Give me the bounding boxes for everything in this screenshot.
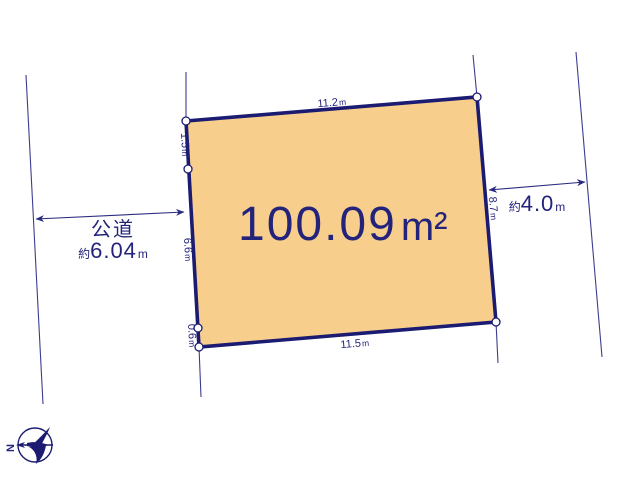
right-road-approx: 約 bbox=[509, 199, 521, 214]
boundary-marker-top-right bbox=[473, 93, 481, 101]
left-road-width-arrow bbox=[36, 212, 184, 219]
boundary-extension-bottom-right bbox=[496, 322, 498, 363]
boundary-marker-bottom-left bbox=[195, 343, 203, 351]
right-road-width-label: 約4.0m bbox=[509, 191, 566, 216]
right-road-far-boundary-line bbox=[576, 52, 602, 357]
land-plot-diagram: 100.09m² 公道 約6.04m 約4.0m 11.2m 11.5m 8.7… bbox=[0, 0, 640, 480]
area-unit: m² bbox=[401, 205, 448, 249]
boundary-extension-top-right bbox=[473, 55, 477, 97]
compass-north-label: N bbox=[5, 444, 17, 452]
left-road-far-boundary-line bbox=[26, 75, 43, 404]
boundary-marker-left-upper bbox=[184, 165, 192, 173]
diagram-canvas: 100.09m² 公道 約6.04m 約4.0m 11.2m 11.5m 8.7… bbox=[0, 0, 640, 480]
boundary-marker-top-left bbox=[182, 117, 190, 125]
compass: N bbox=[5, 427, 53, 464]
left-road-approx: 約 bbox=[78, 246, 90, 261]
boundary-marker-bottom-right bbox=[492, 318, 500, 326]
right-road-width-value: 4.0 bbox=[521, 191, 555, 216]
right-road-width-arrow bbox=[489, 182, 585, 190]
dim-left-middle-label: 6.6m bbox=[181, 238, 194, 262]
left-road-width-value: 6.04 bbox=[90, 238, 137, 263]
left-road-width-unit: m bbox=[138, 247, 148, 261]
dim-left-top-label: 1.5m bbox=[178, 133, 191, 157]
boundary-extension-bottom-left bbox=[199, 347, 201, 397]
area-label: 100.09m² bbox=[238, 198, 447, 251]
dim-bottom-label: 11.5m bbox=[340, 337, 370, 351]
right-road-width-unit: m bbox=[555, 200, 565, 214]
area-value: 100.09 bbox=[238, 198, 397, 251]
left-road-width-label: 約6.04m bbox=[78, 238, 148, 263]
boundary-marker-left-lower bbox=[194, 324, 202, 332]
